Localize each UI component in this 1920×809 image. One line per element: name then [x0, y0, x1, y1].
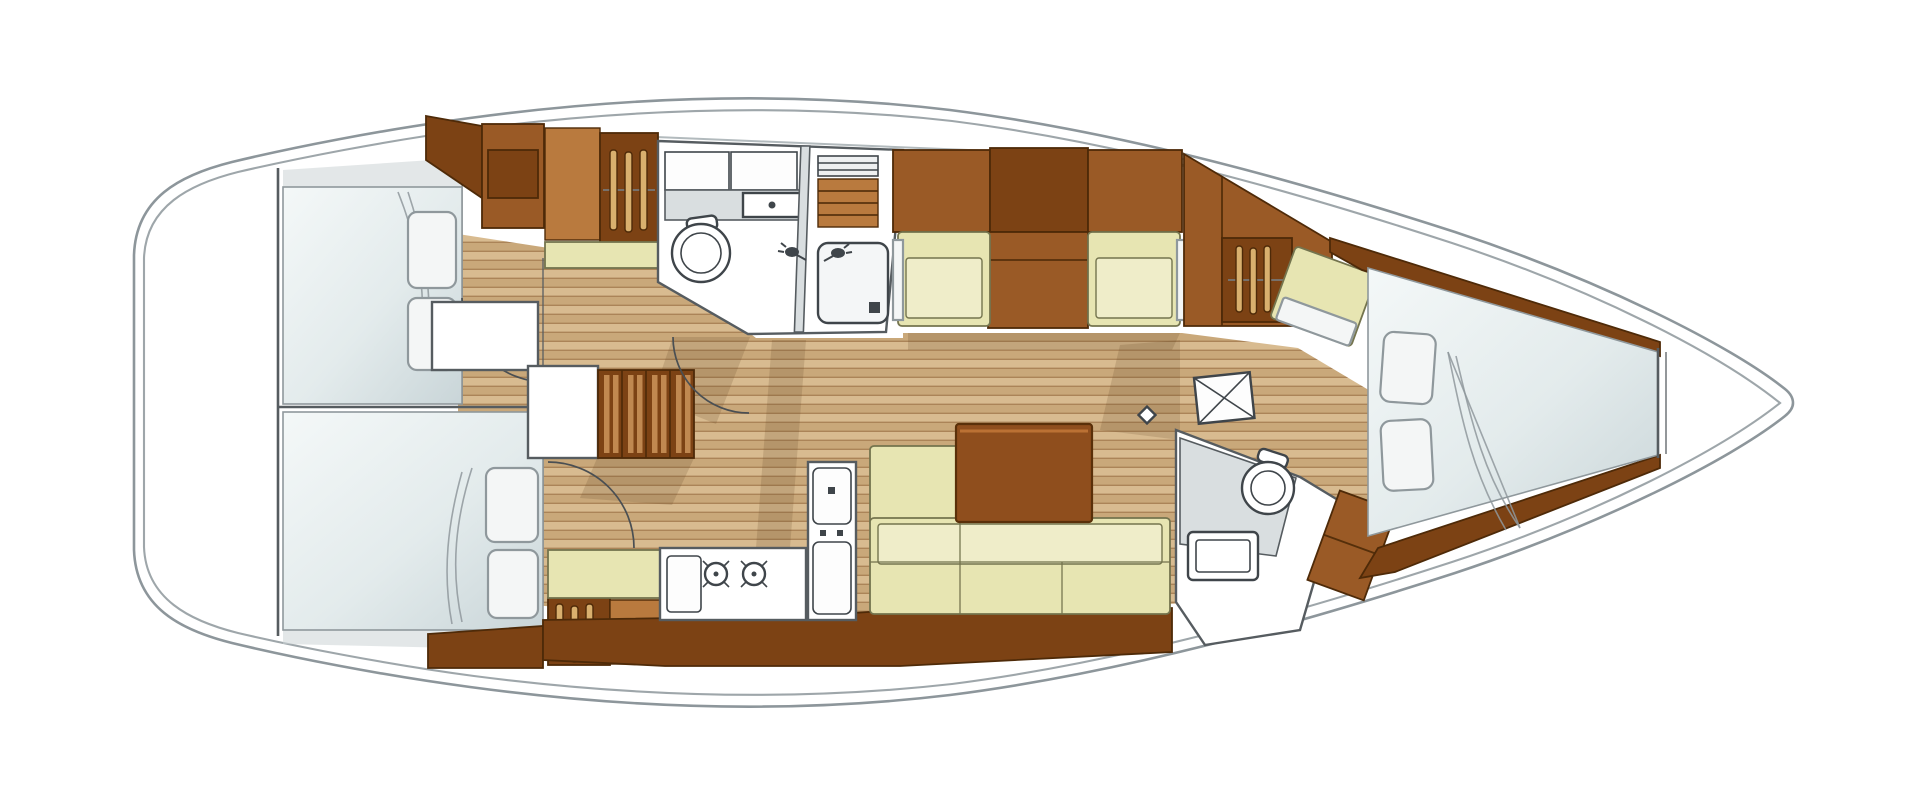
folding-door-icon [1194, 372, 1255, 424]
hanger-icon [625, 152, 632, 232]
salon-cabinet [990, 148, 1088, 232]
hanger-icon [1236, 246, 1243, 312]
pillow [1380, 331, 1437, 404]
salon-top-seats [893, 148, 1187, 328]
pillow [488, 550, 538, 618]
aft-port-shelf [545, 242, 658, 268]
latch-icon [820, 530, 826, 536]
fridge-column [808, 462, 856, 620]
floor-plan-canvas [0, 0, 1920, 809]
seat-table-block [988, 232, 1088, 328]
pillow [408, 212, 456, 288]
drain-icon [869, 302, 880, 313]
hanger-icon [640, 150, 647, 230]
settee-corner-seat [870, 446, 960, 526]
hanger-icon [1264, 246, 1271, 312]
companionway-landing [528, 366, 598, 458]
salon-cabinet [893, 150, 990, 232]
facing-seat-left [893, 232, 990, 326]
facing-seat-right [1088, 232, 1187, 326]
latch-icon [837, 530, 843, 536]
hanger-icon [1250, 248, 1257, 314]
companionway-steps [598, 370, 694, 458]
salon-table-group [956, 424, 1092, 522]
salon-table [956, 424, 1092, 522]
yacht-floor-plan [0, 0, 1920, 809]
salon-cabinet [1088, 150, 1182, 232]
sink-faucet-icon [741, 561, 767, 587]
companionway [528, 366, 694, 458]
pillow [486, 468, 538, 542]
hanging-locker-port [600, 133, 658, 243]
aft-starboard-bench [548, 550, 660, 598]
aft-starboard-cabinet [428, 626, 543, 668]
latch-icon [828, 487, 835, 494]
pillow [1380, 419, 1434, 492]
companionway-table [432, 302, 538, 370]
sink-faucet-icon [703, 561, 729, 587]
hanger-icon [610, 150, 617, 230]
drain-icon [769, 202, 776, 209]
